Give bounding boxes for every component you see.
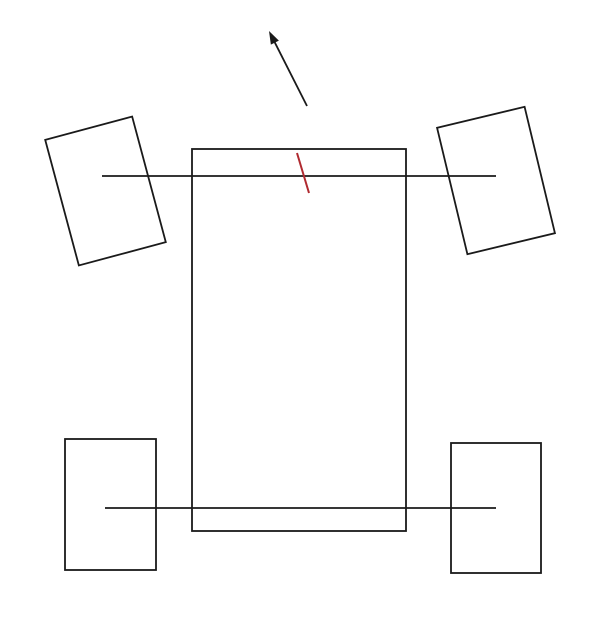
steering-direction-marker bbox=[297, 153, 309, 193]
vehicle-diagram-svg bbox=[0, 0, 600, 624]
vehicle-body bbox=[192, 149, 406, 531]
rear-left-wheel bbox=[65, 439, 156, 570]
front-left-wheel bbox=[45, 117, 166, 266]
heading-arrow-shaft bbox=[274, 41, 307, 106]
vehicle-diagram bbox=[0, 0, 600, 624]
heading-arrow-head-icon bbox=[269, 31, 279, 45]
front-right-wheel bbox=[437, 107, 555, 254]
